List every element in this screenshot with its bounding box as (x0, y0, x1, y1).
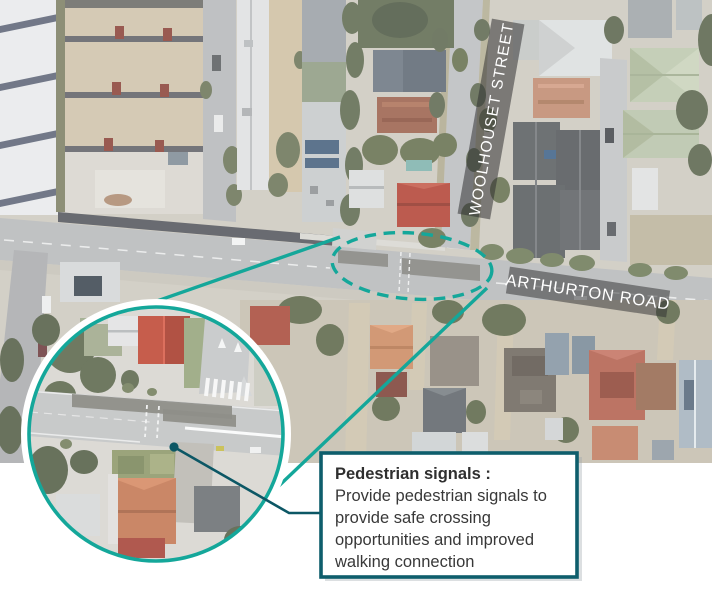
svg-text:Pedestrian signals :: Pedestrian signals : (335, 465, 491, 483)
svg-text:walking connection: walking connection (334, 553, 474, 571)
svg-text:Provide pedestrian signals to: Provide pedestrian signals to (335, 487, 547, 505)
svg-text:opportunities and improved: opportunities and improved (335, 531, 534, 549)
svg-text:provide safe crossing: provide safe crossing (335, 509, 491, 527)
